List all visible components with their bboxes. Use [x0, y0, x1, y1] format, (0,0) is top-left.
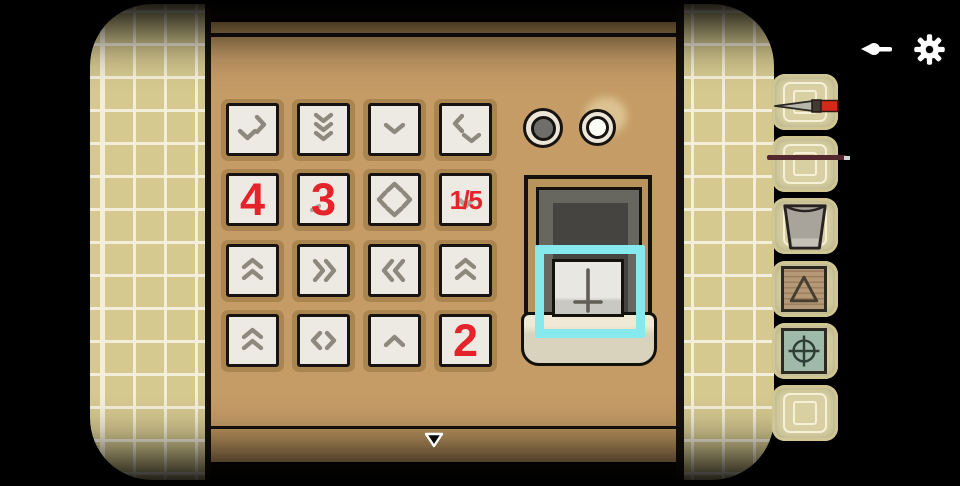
nav-down-arrow[interactable] — [423, 431, 445, 454]
keypad-button-15[interactable] — [368, 314, 421, 367]
keypad-cell-4 — [439, 103, 492, 156]
keypad-number: 4 — [240, 177, 265, 222]
keypad-button-2[interactable] — [297, 103, 350, 156]
inventory-slot-1[interactable] — [772, 74, 838, 130]
keypad-cell-6: 3 — [297, 173, 350, 226]
keypad-button-3[interactable] — [368, 103, 421, 156]
keypad-cell-7 — [368, 173, 421, 226]
inventory-slot-5[interactable] — [772, 323, 838, 379]
keypad-cell-13 — [226, 314, 279, 367]
keypad-button-1[interactable] — [226, 103, 279, 156]
inventory-slot-4[interactable] — [772, 261, 838, 317]
settings-button[interactable] — [913, 33, 946, 71]
slot-outline-inner — [793, 401, 817, 425]
double-chevron-up-icon — [229, 317, 276, 364]
chevron-left-down-icon — [442, 106, 489, 153]
paintbrush-icon — [774, 97, 840, 115]
inventory-slot-2[interactable] — [772, 136, 838, 192]
chevron-up-icon — [371, 317, 418, 364]
keypad-button-5[interactable]: 4 — [226, 173, 279, 226]
exit-arrow-icon — [861, 41, 893, 57]
keypad-button-16[interactable]: 2 — [439, 314, 492, 367]
chevron-down-icon — [371, 106, 418, 153]
exit-arrow-button[interactable] — [861, 41, 893, 62]
inventory-slot-3[interactable] — [772, 198, 838, 254]
crosshair-tile-icon — [781, 328, 827, 374]
room-scene — [90, 4, 774, 480]
diamond-chevrons-icon — [371, 176, 418, 223]
keypad-button-9[interactable] — [226, 244, 279, 297]
keypad-cell-1 — [226, 103, 279, 156]
keypad-button-10[interactable] — [297, 244, 350, 297]
cup-icon — [777, 201, 833, 251]
keypad-cell-2 — [297, 103, 350, 156]
settings-gear-icon — [913, 33, 946, 66]
triple-chevron-down-icon — [300, 106, 347, 153]
keypad-cell-9 — [226, 244, 279, 297]
triangle-tile-icon — [781, 266, 827, 312]
keypad-button-4[interactable] — [439, 103, 492, 156]
keypad-button-12[interactable] — [439, 244, 492, 297]
keypad-cell-5: 4 — [226, 173, 279, 226]
keypad-cell-15 — [368, 314, 421, 367]
keypad-number: 3 — [311, 177, 336, 222]
keypad-button-14[interactable] — [297, 314, 350, 367]
double-chevron-right-icon — [300, 247, 347, 294]
inventory-slot-6[interactable] — [772, 385, 838, 441]
keypad-button-11[interactable] — [368, 244, 421, 297]
keypad-button-13[interactable] — [226, 314, 279, 367]
keypad-button-6[interactable]: 3 — [297, 173, 350, 226]
indicator-light-off-core — [531, 116, 556, 141]
keypad-cell-11 — [368, 244, 421, 297]
keypad-button-7[interactable] — [368, 173, 421, 226]
keypad-cell-8: 1/5 — [439, 173, 492, 226]
keypad-cell-10 — [297, 244, 350, 297]
highlight-square — [535, 245, 645, 338]
double-chevron-up-icon — [442, 247, 489, 294]
keypad-cell-16: 2 — [439, 314, 492, 367]
chevron-left-right-icon — [300, 317, 347, 364]
keypad-cell-14 — [297, 314, 350, 367]
chevron-down-right-icon — [229, 106, 276, 153]
double-chevron-up-icon — [229, 247, 276, 294]
indicator-light-off[interactable] — [523, 108, 563, 148]
game-screen: 4 3 1/5 2 — [0, 0, 960, 486]
double-chevron-left-icon — [371, 247, 418, 294]
keypad-cell-12 — [439, 244, 492, 297]
indicator-light-on[interactable] — [579, 109, 616, 146]
keypad-cell-3 — [368, 103, 421, 156]
metal-rod-icon — [767, 155, 847, 160]
indicator-light-on-core — [586, 116, 609, 139]
keypad-number: 1/5 — [450, 187, 482, 213]
keypad-number: 2 — [453, 318, 478, 363]
keypad-button-8[interactable]: 1/5 — [439, 173, 492, 226]
down-triangle-icon — [423, 431, 445, 449]
